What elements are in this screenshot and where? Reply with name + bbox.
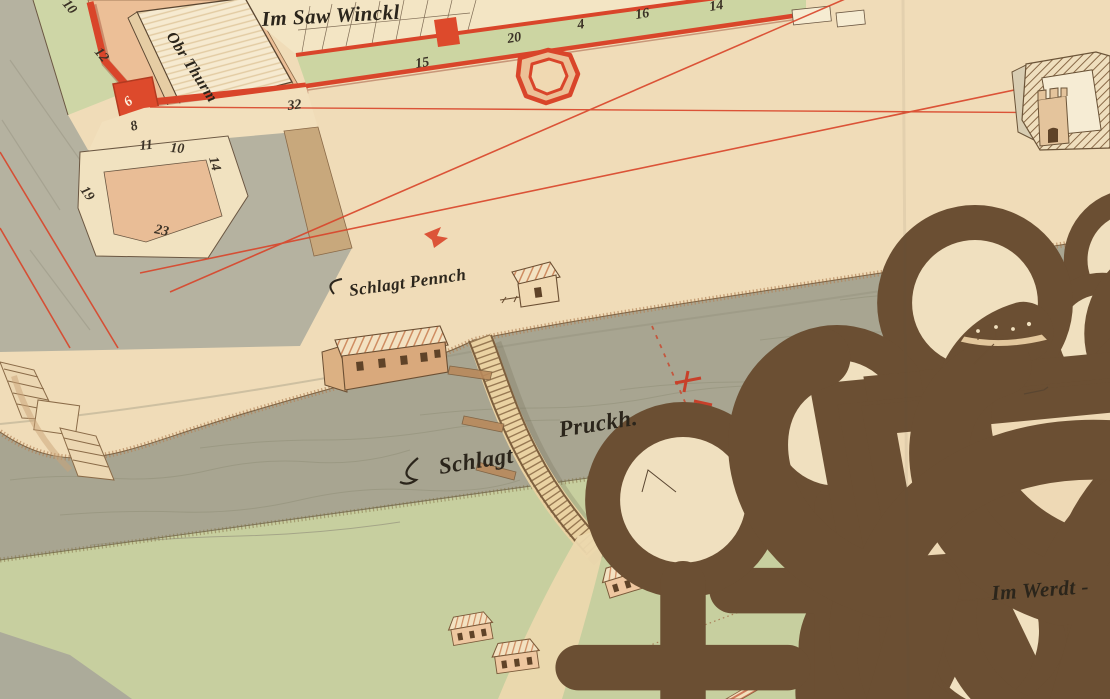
survey-number: 10 [170, 141, 185, 157]
survey-number: 11 [139, 138, 154, 154]
survey-number: 14 [708, 0, 724, 15]
survey-number: 20 [505, 30, 522, 47]
historical-map-page: 10 12 6 8 32 11 10 14 23 19 15 20 4 16 1… [0, 0, 1110, 699]
fort-tower [1038, 88, 1069, 146]
city-gate [518, 50, 578, 103]
survey-number: 23 [152, 222, 170, 240]
map-canvas: 10 12 6 8 32 11 10 14 23 19 15 20 4 16 1… [0, 0, 1110, 699]
survey-number: 15 [414, 55, 430, 72]
survey-number: 32 [286, 97, 303, 114]
survey-number: 16 [634, 6, 650, 23]
house [490, 638, 541, 674]
river-fort [1012, 52, 1110, 150]
wall-tower-red [434, 17, 460, 47]
